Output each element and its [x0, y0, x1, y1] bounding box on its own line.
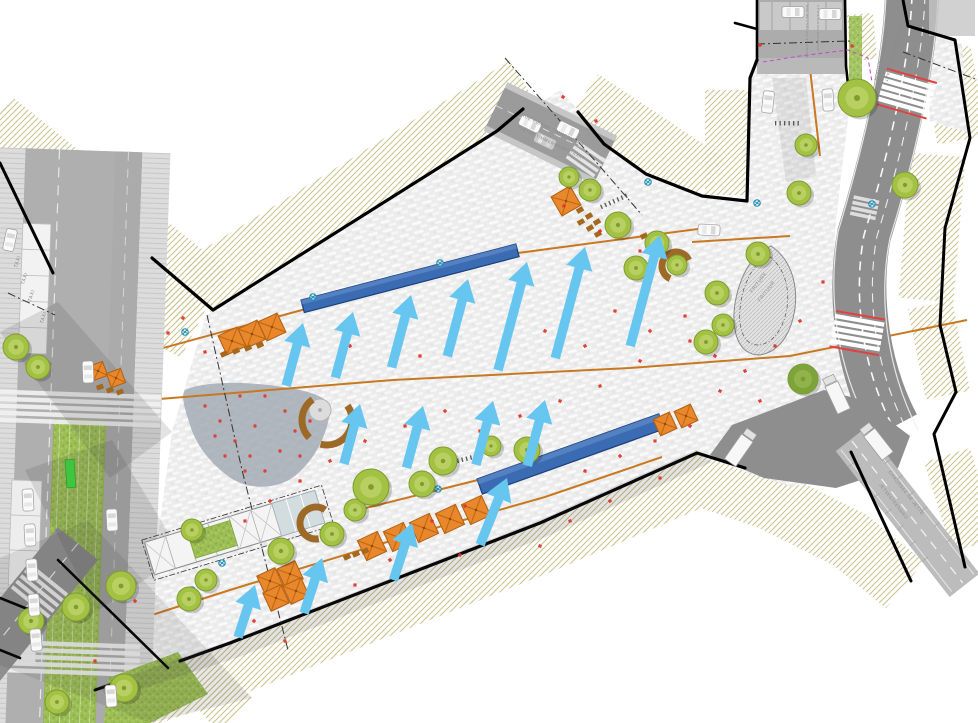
water-jet-dot [233, 439, 236, 442]
water-jet-dot [218, 419, 221, 422]
site-marker [869, 201, 875, 207]
site-marker [310, 294, 316, 300]
green-bench [65, 459, 76, 488]
car [106, 509, 118, 532]
movable-chair-dot [653, 439, 656, 442]
movable-chair-dot [613, 309, 617, 313]
street-label: RUE DE L'EGLISE ST-PIERRE [805, 5, 809, 58]
water-jet-dot [263, 394, 266, 397]
car [822, 89, 835, 112]
site-plan-canvas: RUE PIERRE TIMMERMANSPIETER TIMMERMANSST… [0, 0, 978, 723]
movable-chair-dot [638, 249, 642, 253]
movable-chair-dot [353, 583, 356, 586]
water-jet-dot [293, 429, 296, 432]
site-marker [182, 329, 188, 335]
water-jet-dot [263, 469, 266, 472]
car [105, 685, 118, 708]
car [24, 524, 36, 547]
water-jet-dot [283, 409, 286, 412]
site-marker [754, 200, 760, 206]
site-marker [219, 560, 225, 566]
water-jet-dot [223, 454, 226, 457]
car [26, 559, 39, 582]
car [761, 90, 774, 113]
water-jet-dot [308, 419, 311, 422]
car [28, 594, 41, 617]
movable-chair-dot [850, 44, 853, 47]
site-marker [437, 260, 443, 266]
movable-chair-dot [683, 314, 687, 318]
water-jet-dot [278, 449, 281, 452]
site-marker [645, 179, 651, 185]
movable-chair-dot [243, 519, 247, 523]
car [782, 7, 804, 18]
street-label: ST-PIETERSKERKSTRAAT [816, 5, 820, 51]
movable-chair-dot [93, 659, 97, 663]
water-jet-dot [238, 394, 241, 397]
water-jet-dot [213, 434, 216, 437]
car [30, 629, 43, 652]
water-jet-dot [203, 404, 206, 407]
car [82, 361, 94, 383]
car [819, 9, 841, 20]
car [698, 224, 721, 236]
movable-chair-dot [658, 476, 661, 479]
water-jet-dot [243, 469, 246, 472]
water-jet-dot [248, 454, 251, 457]
movable-chair-dot [298, 479, 302, 483]
movable-chair-dot [403, 424, 407, 428]
water-jet-dot [253, 424, 256, 427]
site-plan-page: RUE PIERRE TIMMERMANSPIETER TIMMERMANSST… [0, 0, 978, 723]
movable-chair-dot [418, 354, 421, 357]
water-jet-dot [298, 454, 301, 457]
hedge-strip [849, 16, 862, 88]
movable-chair-dot [166, 331, 169, 334]
movable-chair-dot [821, 280, 824, 283]
car [22, 489, 34, 512]
